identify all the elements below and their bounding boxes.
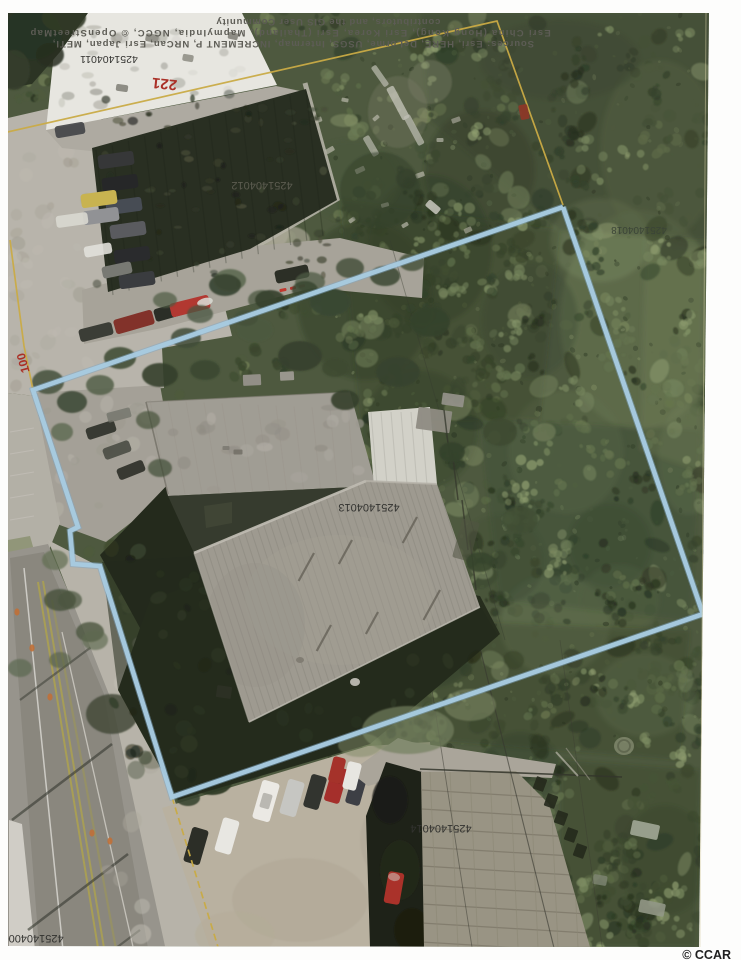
svg-text:Esri China (Hong Kong), Esri K: Esri China (Hong Kong), Esri Korea, Esri… [29,27,551,38]
svg-text:Sources: Esri, HERE, DeLorme,: Sources: Esri, HERE, DeLorme, USGS, Inte… [52,38,534,49]
svg-text:© CCAR: © CCAR [682,948,731,960]
svg-text:contributors, and the GIS User: contributors, and the GIS User Community [216,16,441,27]
